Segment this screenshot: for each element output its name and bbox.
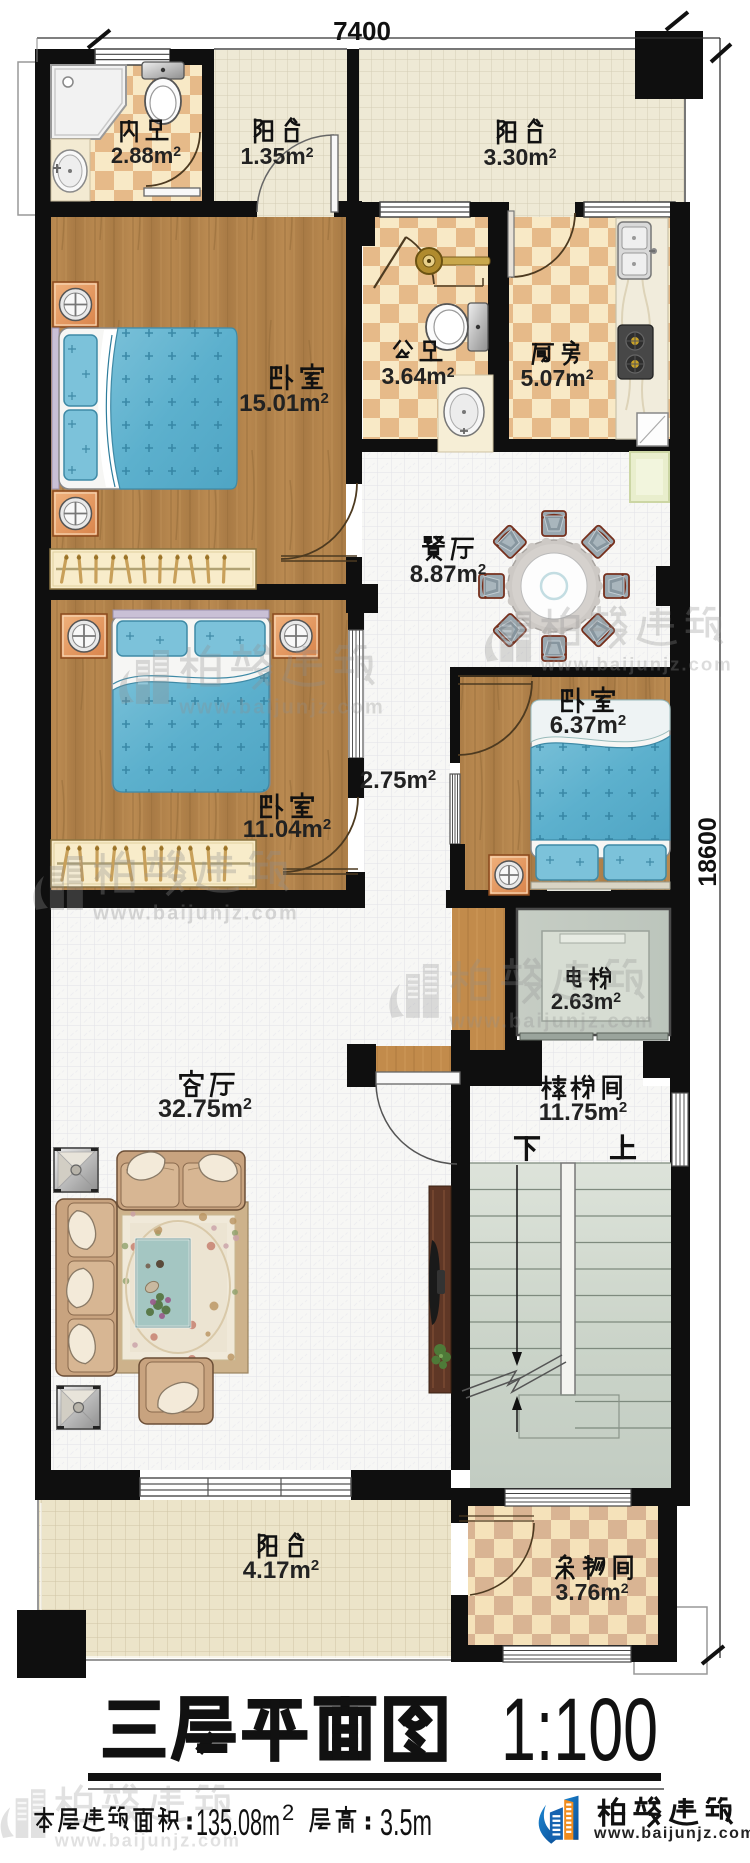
svg-text:135.08m: 135.08m (196, 1802, 280, 1843)
svg-text:3.5m: 3.5m (380, 1802, 432, 1843)
svg-text:5.07m2: 5.07m2 (520, 365, 593, 391)
svg-text:18600: 18600 (694, 817, 722, 887)
svg-text:www.baijunjz.com: www.baijunjz.com (92, 902, 299, 924)
svg-text:2.88m2: 2.88m2 (111, 143, 181, 168)
svg-text:3.76m2: 3.76m2 (555, 1579, 628, 1605)
svg-text:7400: 7400 (333, 16, 391, 46)
svg-text:1:100: 1:100 (501, 1679, 658, 1779)
svg-text:www.baijunjz.com: www.baijunjz.com (540, 654, 733, 675)
svg-text:4.17m2: 4.17m2 (243, 1557, 319, 1584)
svg-text:8.87m2: 8.87m2 (410, 561, 486, 588)
svg-text:3.30m2: 3.30m2 (483, 144, 556, 170)
svg-text:11.04m2: 11.04m2 (243, 816, 331, 843)
svg-text:32.75m2: 32.75m2 (158, 1095, 252, 1123)
svg-text:6.37m2: 6.37m2 (550, 712, 626, 739)
svg-text:www.baijunjz.com: www.baijunjz.com (593, 1825, 750, 1842)
svg-text:www.baijunjz.com: www.baijunjz.com (178, 696, 385, 718)
svg-text:2.75m2: 2.75m2 (360, 767, 436, 794)
svg-text:15.01m2: 15.01m2 (239, 390, 329, 417)
svg-text:11.75m2: 11.75m2 (539, 1099, 627, 1126)
svg-text:1.35m2: 1.35m2 (240, 143, 313, 169)
svg-text:3.64m2: 3.64m2 (381, 363, 454, 389)
svg-text:www.baijunjz.com: www.baijunjz.com (448, 1010, 655, 1032)
svg-text:2: 2 (282, 1800, 294, 1825)
